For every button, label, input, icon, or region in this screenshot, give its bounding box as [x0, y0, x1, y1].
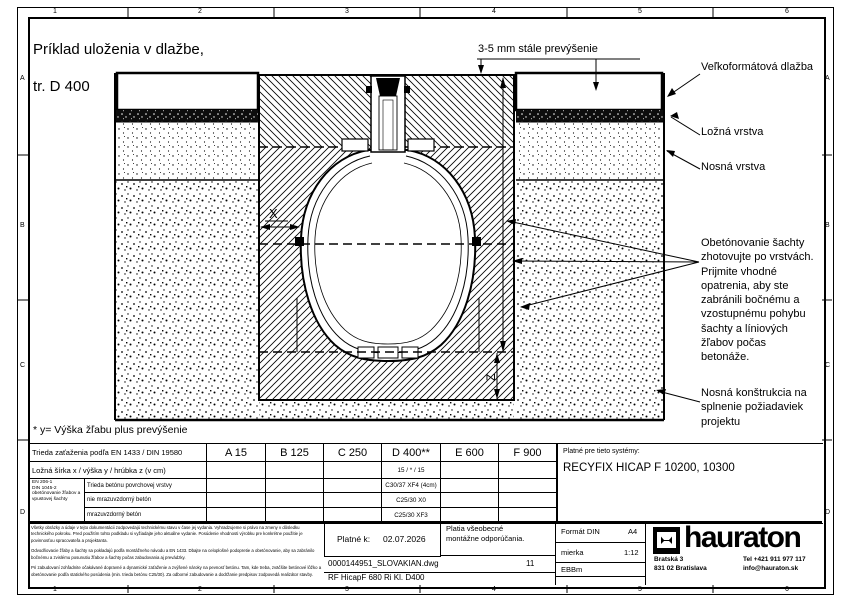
class-e600: E 600	[441, 444, 499, 462]
address-line2: 831 02 Bratislava	[654, 565, 707, 572]
systems-label: Platné pre tieto systémy:	[563, 448, 640, 455]
base-layer-right	[516, 122, 663, 180]
initials-cell: EBBm	[555, 563, 645, 577]
footnote: * y= Výška žľabu plus prevýšenie	[33, 424, 188, 438]
valid-date: 02.07.2026	[383, 534, 426, 544]
logo-block: hauraton Bratská 3 831 02 Bratislava Tel…	[645, 521, 822, 585]
load-class-row-label: Trieda zaťaženia podľa EN 1433 / DIN 195…	[30, 444, 207, 462]
systems-value: RECYFIX HICAP F 10200, 10300	[563, 462, 735, 474]
file-name: 0000144951_SLOVAKIAN.dwg	[328, 559, 439, 568]
drawing-sheet: 1 2 3 4 5 6 1 2 3 4 5 6 A B C D A B C D	[0, 0, 842, 595]
overhang-label: 3-5 mm stále prevýšenie	[478, 42, 598, 56]
concrete-row-label: nie mrazuvzdorný betón	[85, 493, 207, 508]
doc-row: RF HicapF 680 Ri Kl. D400	[324, 572, 555, 585]
subsoil-right	[516, 180, 663, 420]
concrete-standards-cell: EN 206-1 DIN 1045-2 obetónovanie žľabov …	[30, 479, 85, 523]
concrete-value-d400: C30/37 XF4 (4cm)	[382, 479, 441, 493]
empty-cell	[555, 577, 645, 585]
class-a15: A 15	[207, 444, 266, 462]
grating-top	[376, 78, 400, 96]
initials: EBBm	[561, 565, 582, 574]
scale-label: mierka	[561, 548, 584, 557]
hauraton-logo-icon	[653, 527, 680, 554]
scale-value: 1:12	[624, 548, 639, 557]
valid-cell: Platné k: 02.07.2026	[324, 521, 441, 557]
dims-row-label: Ložná šírka x / výška y / hrúbka z (v cm…	[30, 462, 207, 479]
format-value: A4	[628, 527, 637, 536]
channel-outer-shell	[301, 150, 475, 361]
paving-label: Veľkoformátová dlažba	[701, 60, 823, 74]
bedding-label: Ložná vrstva	[701, 125, 823, 139]
substructure-note: Nosná konštrukcia na splnenie požiadavie…	[701, 386, 827, 429]
paving-slab-right	[516, 73, 662, 110]
scale-cell: mierka 1:12	[555, 543, 645, 563]
base-layer-label: Nosná vrstva	[701, 160, 823, 174]
class-c250: C 250	[324, 444, 382, 462]
address-line1: Bratská 3	[654, 556, 683, 563]
class-f900: F 900	[499, 444, 557, 462]
format-cell: Formát DIN A4	[555, 521, 645, 543]
subsoil-under	[259, 400, 514, 420]
svg-text:X: X	[269, 206, 278, 221]
file-row: 0000144951_SLOVAKIAN.dwg 11	[324, 556, 555, 573]
dims-value-d400: 15 / * / 15	[382, 462, 441, 479]
subsoil-left	[116, 180, 258, 420]
email: info@hauraton.sk	[743, 565, 798, 572]
class-b125: B 125	[266, 444, 324, 462]
encasement-note: Obetónovanie šachty zhotovujte po vrstvá…	[701, 236, 827, 365]
valid-label: Platné k:	[337, 534, 370, 544]
brand-name: hauraton	[684, 523, 800, 553]
sheet-number: 11	[526, 559, 534, 568]
concrete-row-label: Trieda betónu povrchovej vrstvy	[85, 479, 207, 493]
phone: Tel +421 911 977 117	[743, 556, 806, 563]
bedding-strip-right	[516, 110, 663, 122]
systems-block: Platné pre tieto systémy: RECYFIX HICAP …	[556, 443, 823, 524]
base-layer-left	[116, 122, 258, 180]
format-label: Formát DIN	[561, 527, 600, 536]
bedding-strip-left	[116, 110, 258, 122]
load-class-table: Trieda zaťaženia podľa EN 1433 / DIN 195…	[29, 443, 558, 524]
class-d400: D 400**	[382, 444, 441, 462]
doc-name: RF HicapF 680 Ri Kl. D400	[328, 573, 424, 582]
legal-notes: Všetky obrázky a údaje v tejto dokumentá…	[31, 525, 323, 583]
svg-text:Z: Z	[484, 374, 498, 381]
concrete-value-d400: C25/30 X0	[382, 493, 441, 508]
page-title: Príklad uloženia v dlažbe, tr. D 400	[33, 22, 204, 97]
general-note-cell: Platia všeobecné montážne odporúčania.	[440, 521, 555, 556]
